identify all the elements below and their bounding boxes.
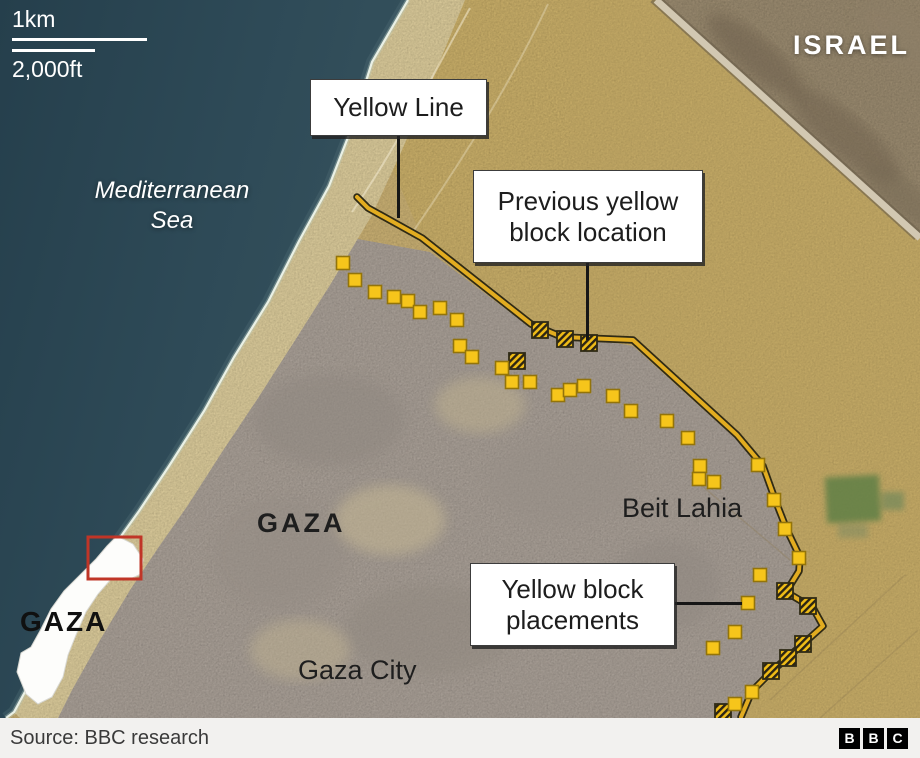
placements-leader — [673, 602, 742, 605]
previous-block-marker — [581, 335, 597, 351]
yellow-block-marker — [402, 295, 415, 308]
yellow-block-marker — [729, 698, 742, 711]
source-credit: Source: BBC research — [10, 727, 839, 750]
beit-lahia-label: Beit Lahia — [622, 493, 742, 524]
previous-block-marker — [795, 636, 811, 652]
yellow-block-marker — [708, 476, 721, 489]
yellow-block-marker — [746, 686, 759, 699]
scale-bar: 1km 2,000ft — [12, 8, 147, 81]
yellow-line-leader — [397, 134, 400, 218]
yellow-block-marker — [793, 552, 806, 565]
yellow-block-marker — [779, 523, 792, 536]
previous-block-leader — [586, 261, 589, 340]
israel-label: ISRAEL — [793, 30, 910, 61]
scale-imperial-line — [12, 49, 95, 52]
yellow-block-marker — [466, 351, 479, 364]
yellow-block-marker — [552, 389, 565, 402]
bbc-logo-letter: B — [839, 728, 860, 749]
bbc-logo-letter: B — [863, 728, 884, 749]
yellow-block-marker — [694, 460, 707, 473]
yellow-block-marker — [451, 314, 464, 327]
previous-block-callout: Previous yellow block location — [473, 170, 703, 263]
yellow-block-marker — [454, 340, 467, 353]
scale-metric-line — [12, 38, 147, 41]
scale-imperial-label: 2,000ft — [12, 58, 147, 81]
placements-callout: Yellow block placements — [470, 563, 675, 646]
yellow-block-marker — [742, 597, 755, 610]
previous-block-marker — [800, 598, 816, 614]
gaza-inset-label: GAZA — [20, 606, 107, 638]
yellow-block-marker — [752, 459, 765, 472]
gaza-region-label: GAZA — [257, 508, 346, 539]
sea-label-line1: Mediterranean — [95, 177, 250, 204]
bbc-logo: B B C — [839, 728, 908, 749]
yellow-block-marker — [693, 473, 706, 486]
yellow-block-marker — [607, 390, 620, 403]
yellow-block-marker — [337, 257, 350, 270]
bbc-logo-letter: C — [887, 728, 908, 749]
yellow-block-marker — [434, 302, 447, 315]
previous-block-marker — [532, 322, 548, 338]
yellow-block-marker — [524, 376, 537, 389]
yellow-block-marker — [564, 384, 577, 397]
sea-label-line2: Sea — [151, 207, 194, 234]
yellow-block-marker — [388, 291, 401, 304]
yellow-block-marker — [369, 286, 382, 299]
bbc-map-graphic: 1km 2,000ft ISRAEL Mediterranean Sea GAZ… — [0, 0, 920, 758]
yellow-block-marker — [729, 626, 742, 639]
scale-metric-label: 1km — [12, 8, 147, 31]
yellow-block-marker — [578, 380, 591, 393]
yellow-block-marker — [496, 362, 509, 375]
yellow-block-marker — [414, 306, 427, 319]
previous-block-marker — [557, 331, 573, 347]
previous-block-marker — [777, 583, 793, 599]
gaza-city-label: Gaza City — [298, 655, 417, 686]
yellow-block-marker — [625, 405, 638, 418]
mediterranean-sea-label: Mediterranean Sea — [78, 176, 266, 236]
yellow-block-marker — [506, 376, 519, 389]
yellow-block-marker — [768, 494, 781, 507]
yellow-block-marker — [349, 274, 362, 287]
footer-bar: Source: BBC research B B C — [0, 718, 920, 758]
yellow-block-marker — [661, 415, 674, 428]
previous-block-marker — [763, 663, 779, 679]
yellow-block-marker — [754, 569, 767, 582]
yellow-block-marker — [682, 432, 695, 445]
previous-block-marker — [780, 650, 796, 666]
yellow-line-callout: Yellow Line — [310, 79, 487, 136]
yellow-block-marker — [707, 642, 720, 655]
previous-block-marker — [509, 353, 525, 369]
